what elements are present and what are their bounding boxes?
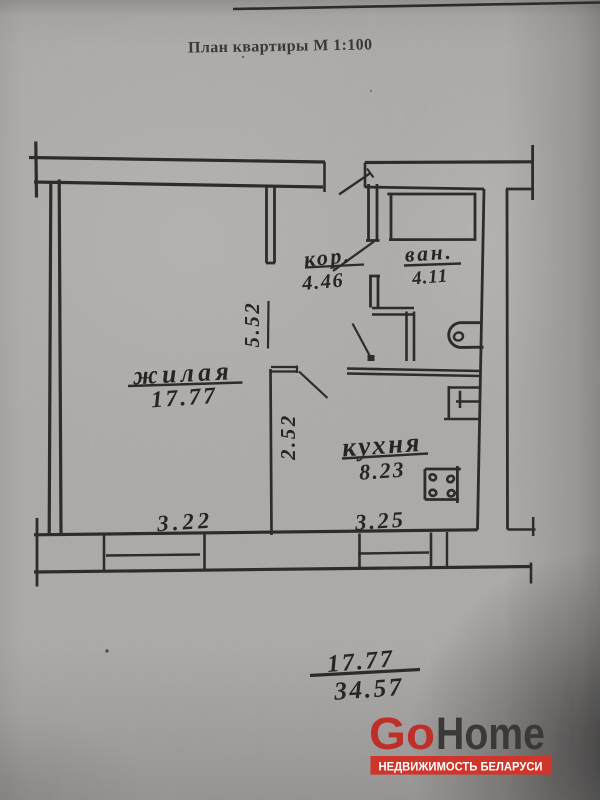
svg-text:4.11: 4.11 — [410, 265, 449, 289]
svg-text:17.77: 17.77 — [150, 383, 219, 414]
svg-text:НЕДВИЖИМОСТЬ БЕЛАРУСИ: НЕДВИЖИМОСТЬ БЕЛАРУСИ — [379, 762, 543, 774]
svg-text:3.25: 3.25 — [353, 507, 406, 536]
svg-text:5.52: 5.52 — [240, 301, 264, 348]
svg-text:8.23: 8.23 — [358, 457, 406, 485]
svg-text:4.46: 4.46 — [300, 269, 345, 295]
svg-text:34.57: 34.57 — [332, 672, 405, 706]
svg-text:План квартиры М 1:100: План квартиры М 1:100 — [188, 36, 373, 56]
svg-text:Home: Home — [436, 708, 545, 759]
svg-text:ван.: ван. — [404, 239, 454, 266]
svg-text:Go: Go — [369, 708, 435, 759]
svg-text:2.52: 2.52 — [276, 413, 300, 461]
svg-text:3.22: 3.22 — [155, 507, 214, 536]
